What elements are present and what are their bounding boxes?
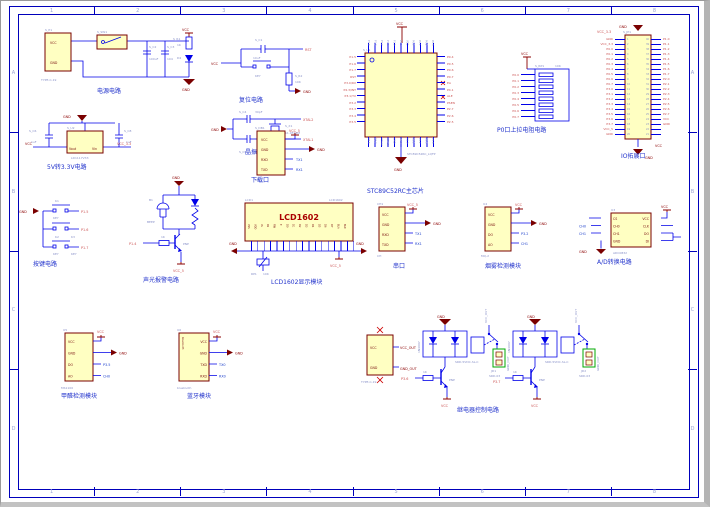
diode-part-label: 1N4007: [507, 341, 511, 353]
designator: LCD1: [245, 198, 253, 202]
block-caption: 5V转3.3V电路: [47, 162, 87, 171]
designator: U6: [177, 328, 181, 332]
regulator-block: GND Vout Vin S_U2 LD1117V33 S_C6 1uF S_C…: [25, 109, 140, 171]
gnd-icon: [395, 157, 407, 164]
wires: [93, 337, 111, 376]
pin-label: DO: [68, 363, 73, 367]
reset-circuit-drawing: VCC S_C1 10uF KEY RST S_R2 10K GND: [211, 29, 316, 105]
vcc33-net-label: VCC_3.3: [597, 30, 611, 34]
block-caption: 下载口: [251, 175, 269, 184]
pnp-transistor-icon: [531, 367, 538, 388]
left-net-labels: GNDVCC_3.3P0.0P0.1P0.2P0.3P0.4P0.5P0.6P0…: [595, 37, 613, 137]
terminal-pin: [496, 360, 502, 365]
pnp-transistor-icon: [175, 234, 182, 252]
relay-part-label: SRD-5VDC-SL-C: [455, 360, 479, 364]
net-label: RX1: [296, 168, 303, 172]
zone-number: 5: [354, 487, 440, 496]
zone-number: 1: [9, 487, 95, 496]
gnd-icon: [227, 350, 233, 356]
zone-number: 7: [526, 6, 612, 15]
block-caption: 按键电路: [33, 259, 57, 268]
zone-number: 2: [95, 6, 181, 15]
vcc-icon: [663, 210, 671, 212]
gnd-net-label: GND: [229, 242, 237, 246]
part-label: bluetooth: [177, 386, 192, 390]
designator: S_U2: [67, 126, 75, 130]
left-pin-stubs: [357, 56, 365, 127]
led-icon: [541, 337, 549, 344]
vcc-icon: [523, 57, 531, 69]
diode-part-label: 1N4007: [417, 341, 421, 353]
vcc-net-label: VCC: [182, 28, 190, 32]
part-label: TYPE-C-19: [360, 380, 377, 384]
zone-number: 4: [267, 487, 353, 496]
pin-label: Vout: [69, 147, 77, 151]
pin-number: 20: [627, 132, 635, 137]
terminal-pin: [586, 352, 592, 357]
vcc-net-label: VCC: [211, 62, 219, 66]
wires: [285, 135, 309, 169]
designator: S_C2: [149, 45, 156, 49]
zone-number: 4: [267, 6, 353, 15]
part-label: KEY: [53, 216, 59, 220]
pin-label: VCC: [200, 340, 207, 344]
value-label: 104: [167, 57, 173, 61]
block-caption: IO拓展口: [621, 151, 646, 160]
switch-arm: [579, 334, 588, 342]
resistor-icon: [159, 241, 169, 246]
input-net-label: P1.4: [129, 242, 136, 246]
gnd-net-label: GND: [433, 222, 441, 226]
left-pin-labels: P1.5P1.6P1.7RSTP3.0/RXP4.3/INTP3.1/TXP3.…: [341, 54, 356, 126]
bottom-pin-labels: P3.6P3.7XTAL2XTAL1GNDP4.0P2.0P2.1P2.2P2.…: [367, 138, 437, 151]
bluetooth-module-drawing: VCC GND TXD RXD VCC GND TX0 RX0 U6 bluet…: [163, 323, 263, 401]
net-label: TX1: [414, 232, 422, 236]
zone-number: 2: [95, 487, 181, 496]
right-net-labels: P1.0P1.1P1.2P1.3P1.4P1.5P1.6P1.7P2.0P2.1…: [663, 37, 693, 127]
net-label: CH0: [103, 375, 110, 379]
zone-ruler-bottom: 12345678: [9, 487, 697, 496]
part-label: ADC0832: [613, 251, 627, 255]
zone-letter: A: [9, 14, 18, 133]
key-icon: [52, 241, 70, 248]
pin-label: CH1: [613, 232, 620, 236]
relay-coil-icon: [561, 337, 574, 353]
pin-label: TXD: [199, 363, 207, 367]
pin-numbers-left: 1234567891011121314151617181920: [627, 37, 635, 137]
resistor-icon: [423, 376, 433, 381]
reset-circuit-block: VCC S_C1 10uF KEY RST S_R2 10K GND 复位电路: [211, 29, 316, 105]
led-icon: [185, 55, 193, 62]
wires: [511, 209, 531, 243]
gnd-net-label: GND: [172, 176, 180, 180]
net-label: CH1: [521, 242, 528, 246]
zone-letter: C: [688, 252, 697, 371]
vcc-out-label: VCC_OUT: [574, 309, 578, 323]
vcc-icon: [515, 207, 523, 209]
vcc-net-label: VCC: [213, 330, 221, 334]
net-label: P1.7: [81, 246, 88, 250]
pin-label: AO: [68, 375, 73, 379]
net-label: P1.5: [81, 210, 88, 214]
input-net-label: P3.6: [401, 377, 408, 381]
pin-label: DO: [644, 232, 649, 236]
pin-label: CLK: [643, 225, 650, 229]
net-label: P3.5: [103, 363, 110, 367]
terminal-pin: [586, 360, 592, 365]
capacitor-icon: [247, 115, 250, 123]
pin-label: VCC: [488, 213, 495, 217]
designator: S_C1: [255, 38, 262, 42]
contact-dot: [586, 343, 588, 345]
designator: K1: [55, 199, 59, 203]
mcu-body: [365, 53, 437, 137]
contact-dot: [496, 343, 498, 345]
designator: JD1: [490, 369, 496, 373]
lcd-block: LCD1602 LCD1 LCD1602 GND GND RP1 10K VCC…: [229, 193, 369, 289]
relay-part-label: SRD-5VDC-SL-C: [545, 360, 569, 364]
part-label: PNP: [183, 242, 189, 246]
gnd-net-label: GND: [119, 352, 127, 356]
zone-letter: D: [688, 370, 697, 488]
gnd-net-label: GND: [211, 128, 219, 132]
vcc-net-label: VCC: [655, 144, 663, 148]
vcc-icon: [213, 335, 221, 337]
gnd-icon: [111, 350, 117, 356]
pin-label: CH0: [613, 225, 620, 229]
designator: U3: [611, 208, 615, 212]
gnd-net-label: GND: [437, 315, 445, 319]
pin-net-label: P2.5: [447, 119, 471, 126]
block-caption: 串口: [393, 261, 405, 270]
net-label: CH0: [579, 225, 586, 229]
pin-label: GND: [50, 61, 58, 65]
formaldehyde-module-drawing: VCC GND DO AO VCC GND P3.5 CH0 U5 MS1100: [49, 323, 149, 401]
vcc-net-label: VCC_5: [407, 203, 418, 207]
zone-number: 3: [181, 487, 267, 496]
key-icon: [52, 223, 70, 230]
relay-unit: GND 1N4007 SRD-5VDC-SL-C VCC_OUT GND_OUT: [401, 309, 510, 408]
bluetooth-side-text: bluetooth: [181, 337, 184, 349]
gnd-icon: [183, 79, 195, 85]
designator: S_SW1: [97, 30, 107, 34]
serial-port-drawing: VCC GND RXD TXD VCC_5 GND TX1 RX1 CH1 CH: [367, 199, 459, 271]
rst-net-label: RST: [305, 48, 313, 52]
formaldehyde-module-block: VCC GND DO AO VCC GND P3.5 CH0 U5 MS1100…: [49, 323, 149, 401]
net-label: RX1: [415, 242, 422, 246]
net-label: P1.6: [81, 228, 88, 232]
diode-icon: [429, 337, 437, 344]
p0-net-labels: P0.0P0.1P0.2P0.3P0.4P0.5P0.6P0.7: [497, 72, 519, 120]
vcc-icon: [97, 335, 105, 337]
value-label: 30pF: [255, 110, 263, 114]
value-label: 1K: [161, 235, 166, 239]
gnd-net-label: GND: [579, 250, 587, 254]
zone-number: 3: [181, 6, 267, 15]
pin-label: TXD: [260, 168, 268, 172]
pin-label: RXD: [261, 158, 268, 162]
net-label: TX1: [295, 158, 303, 162]
value-label: 10K: [263, 272, 270, 276]
vcc-net-label: VCC: [396, 22, 404, 26]
gnd-icon: [295, 88, 301, 94]
value-label: 100uF: [149, 57, 159, 61]
pin-label: GND: [200, 352, 208, 356]
adc-block: CS CH0 CH1 GND VCC CLK DO DI GND VCC CH0…: [573, 199, 687, 267]
vcc-net-label: VCC: [441, 404, 449, 408]
gnd-net-label: GND: [303, 90, 311, 94]
right-pin-stubs: [437, 56, 445, 127]
pin-number: 21: [641, 132, 649, 137]
resistor-zigzag: [192, 208, 198, 225]
value-label: 1K: [177, 43, 182, 47]
designator: B1: [149, 198, 153, 202]
lcd-pin-labels: VSSVDDVLRSRWED0D1D2D3D4D5D6D7BLABLK: [247, 224, 349, 241]
part-label: LD1117V33: [71, 156, 89, 160]
vcc-icon: [335, 257, 343, 259]
pin-label: TXD: [381, 243, 389, 247]
designator: RP1: [251, 272, 257, 276]
relay-block: VCC GND VCC_OUT GND_OUT TYPE-C-19 GND 1N…: [357, 313, 637, 423]
gnd-icon: [425, 220, 431, 226]
pin-net-label: P0.3: [431, 40, 437, 53]
zone-number: 8: [612, 6, 697, 15]
wires: [237, 251, 361, 271]
value-label: 10K: [555, 64, 562, 68]
gnd-net-label: GND: [619, 25, 627, 29]
pin-label: RXD: [382, 233, 389, 237]
terminal-pin: [496, 352, 502, 357]
block-caption: 蓝牙模块: [187, 391, 211, 400]
gnd-icon: [221, 126, 227, 132]
gnd-icon: [174, 181, 184, 186]
zone-number: 6: [440, 6, 526, 15]
designator: U4: [483, 202, 487, 206]
part-label: SRD-03: [489, 374, 500, 378]
relay-coil-icon: [471, 337, 484, 353]
vcc-net-label: VCC: [531, 404, 539, 408]
net-label: VCC_OUT: [400, 346, 417, 350]
designator: S_R1: [173, 37, 180, 41]
vcc-net-label: VCC_5: [330, 264, 341, 268]
pin-net-label: P3.5: [349, 119, 356, 126]
vcc-icon: [533, 397, 541, 399]
pin-label: VCC: [261, 138, 268, 142]
designator: JD2: [580, 369, 586, 373]
resistor-icon: [513, 376, 523, 381]
pin-label: BLK: [343, 224, 349, 241]
vcc-net-label: VCC: [97, 330, 105, 334]
designator: S_R2: [295, 74, 302, 78]
designator: S_JP1: [623, 30, 631, 34]
block-caption: 继电器控制电路: [457, 405, 499, 414]
pullup-block: VCC S_RP1 10K P0.0P0.1P0.2P0.3P0.4P0.5P0…: [493, 49, 598, 133]
net-label: CH1: [579, 232, 586, 236]
wires: [209, 337, 227, 376]
part-label: SRD-03: [579, 374, 590, 378]
led-icon: [191, 199, 199, 206]
designator: S_RP1: [535, 64, 544, 68]
vcc-net-label: VCC_5: [289, 129, 300, 133]
vcc-out-label: VCC_OUT: [484, 309, 488, 323]
smoke-module-block: VCC GND DO AO VCC GND P3.2 CH1 U4 MQ-2 烟…: [473, 199, 565, 271]
part-label: MS1100: [61, 386, 73, 390]
pin-label: AO: [488, 243, 493, 247]
value-label: 10K: [295, 80, 302, 84]
gnd-icon: [596, 249, 606, 254]
vcc-net-label: VCC: [25, 142, 33, 146]
capacitor-icon: [261, 45, 265, 53]
zone-number: 5: [354, 6, 440, 15]
net-label: P3.2: [521, 232, 528, 236]
net-label: TX0: [218, 363, 226, 367]
block-caption: A/D转换电路: [597, 257, 632, 266]
right-pin-labels: P0.4P0.5P0.6P0.7EAP4.1ALEPSENP2.7P2.6P2.…: [447, 54, 471, 126]
wires: [405, 209, 425, 243]
gnd-icon: [529, 319, 541, 325]
net-stubs: [521, 74, 535, 119]
serial-port-block: VCC GND RXD TXD VCC_5 GND TX1 RX1 CH1 CH…: [367, 199, 459, 271]
vcc-icon: [177, 262, 185, 264]
gnd-net-label: GND: [527, 315, 535, 319]
pin-label: CS: [613, 217, 617, 221]
zone-letter: D: [9, 370, 18, 488]
io-port-block: GND VCC_3.3 S_JP1 VCC GND 12345678910111…: [595, 19, 695, 161]
pin-label: VCC: [50, 41, 57, 45]
diode-icon: [519, 337, 527, 344]
zone-ruler-left: ABCD: [9, 14, 18, 488]
net-label: P0.7: [512, 114, 519, 120]
relay-link: [574, 339, 585, 345]
pin-label: DI: [646, 240, 649, 244]
gnd-icon: [439, 319, 451, 325]
net-label: GND_OUT: [400, 367, 418, 371]
part-label: TYPE-C-19: [40, 78, 57, 82]
designator: K3: [71, 235, 75, 239]
wires: [393, 347, 399, 367]
designator: S_C3: [167, 45, 174, 49]
zone-ruler-top: 12345678: [9, 6, 697, 15]
block-caption: 复位电路: [239, 95, 263, 104]
gnd-net-label: GND: [645, 156, 653, 160]
designator: S_P1: [45, 28, 52, 32]
pin-label: DO: [488, 233, 493, 237]
pin-label: VCC: [382, 213, 389, 217]
part-label: KEY: [255, 74, 261, 78]
part-label: CH: [377, 254, 381, 258]
value-label: 1K: [513, 370, 518, 374]
designator: CH1: [377, 202, 383, 206]
relay-link: [484, 339, 495, 345]
designator: S_C4: [239, 110, 246, 114]
gnd-icon: [77, 115, 87, 121]
vcc-net-label: VCC: [661, 205, 669, 209]
zone-number: 8: [612, 487, 697, 496]
gnd-net-label: GND: [235, 352, 243, 356]
wires: [43, 211, 79, 247]
gnd-net-label: GND: [539, 222, 547, 226]
pnp-transistor-icon: [441, 367, 448, 388]
alarm-block: GND B1 BEEP 1K P1.4 PNP VCC_5: [123, 173, 235, 291]
zone-letter: B: [9, 133, 18, 252]
resistor-elements: [539, 73, 553, 119]
download-port-block: VCC GND RXD TXD VCC_5 GND TX1 RX1 S_DB1 …: [239, 125, 339, 187]
gnd-icon: [309, 146, 315, 152]
zone-letter: C: [9, 252, 18, 371]
buzzer-icon: [157, 203, 169, 217]
gnd-net-label: GND: [63, 115, 71, 119]
designator: S_C6: [29, 129, 36, 133]
resistor-icon: [286, 73, 292, 85]
part-label: LCD1602: [329, 198, 343, 202]
designator: D4: [177, 56, 181, 60]
pin-label: GND: [261, 148, 269, 152]
vcc-net-label: VCC_5: [173, 269, 184, 273]
led-icon: [451, 337, 459, 344]
block-caption: STC89C52RC主芯片: [367, 186, 424, 195]
lcd-title: LCD1602: [279, 213, 319, 222]
pin-label: RXD: [200, 375, 207, 379]
right-pin-stubs: [651, 39, 661, 135]
block-caption: 声光报警电路: [143, 275, 179, 284]
net-label: RX0: [219, 375, 226, 379]
gnd-icon: [231, 248, 237, 254]
block-caption: LCD1602显示模块: [271, 277, 322, 286]
block-caption: 烟雾检测模块: [485, 261, 521, 270]
mcu-block: VCC S_U1 GND STC89C52RC_LQFP P1.5P1.6P1.…: [341, 19, 471, 197]
gnd-icon: [531, 220, 537, 226]
part-label: PNP: [449, 378, 455, 382]
pin-label: GND: [613, 240, 621, 244]
gnd-out-label: GND_OUT: [506, 356, 510, 371]
power-circuit-block: VCC GND S_P1 TYPE-C-19 S_SW1 S_C2 100uF …: [39, 25, 199, 97]
zone-number: 1: [9, 6, 95, 15]
designator: S_C8: [124, 129, 131, 133]
part-label: BEEP: [147, 220, 155, 224]
zone-number: 6: [440, 487, 526, 496]
bluetooth-module-block: VCC GND TXD RXD VCC GND TX0 RX0 U6 bluet…: [163, 323, 263, 401]
gnd-icon: [633, 25, 643, 31]
part-label: PNP: [539, 378, 545, 382]
vcc-net-label: VCC: [515, 203, 523, 207]
top-pin-labels: P1.4P1.3P1.2P1.1P1.0P4.2VCCP0.0P0.1P0.2P…: [367, 40, 437, 53]
gnd-net-label: GND: [19, 210, 27, 214]
block-caption: P0口上拉电阻电路: [497, 125, 546, 134]
pin-label: GND: [68, 352, 76, 356]
gnd-net-label: GND: [356, 242, 364, 246]
vcc-icon: [409, 207, 417, 209]
block-caption: 电源电路: [97, 86, 121, 95]
pin-label: GND: [370, 366, 378, 370]
part-label: MQ-2: [481, 254, 489, 258]
schematic-sheet: 12345678 12345678 ABCD ABCD VCC GND S_P1…: [0, 0, 710, 507]
vcc-icon: [185, 33, 193, 37]
pin-label: GND: [488, 223, 496, 227]
vcc-icon: [443, 397, 451, 399]
alarm-drawing: GND B1 BEEP 1K P1.4 PNP VCC_5: [123, 173, 235, 291]
pin-label: VCC: [68, 340, 75, 344]
value-label: 10uF: [253, 56, 261, 60]
gnd-net-label: GND: [317, 148, 325, 152]
net-label: GND: [663, 122, 693, 127]
value-label: 1K: [423, 370, 428, 374]
block-caption: 甲醛检测模块: [61, 391, 97, 400]
designator: S_DB1: [255, 126, 265, 130]
net-label: GND: [606, 132, 613, 137]
key-icon: [52, 205, 70, 212]
key-icon: [253, 61, 271, 68]
designator: U5: [63, 328, 67, 332]
